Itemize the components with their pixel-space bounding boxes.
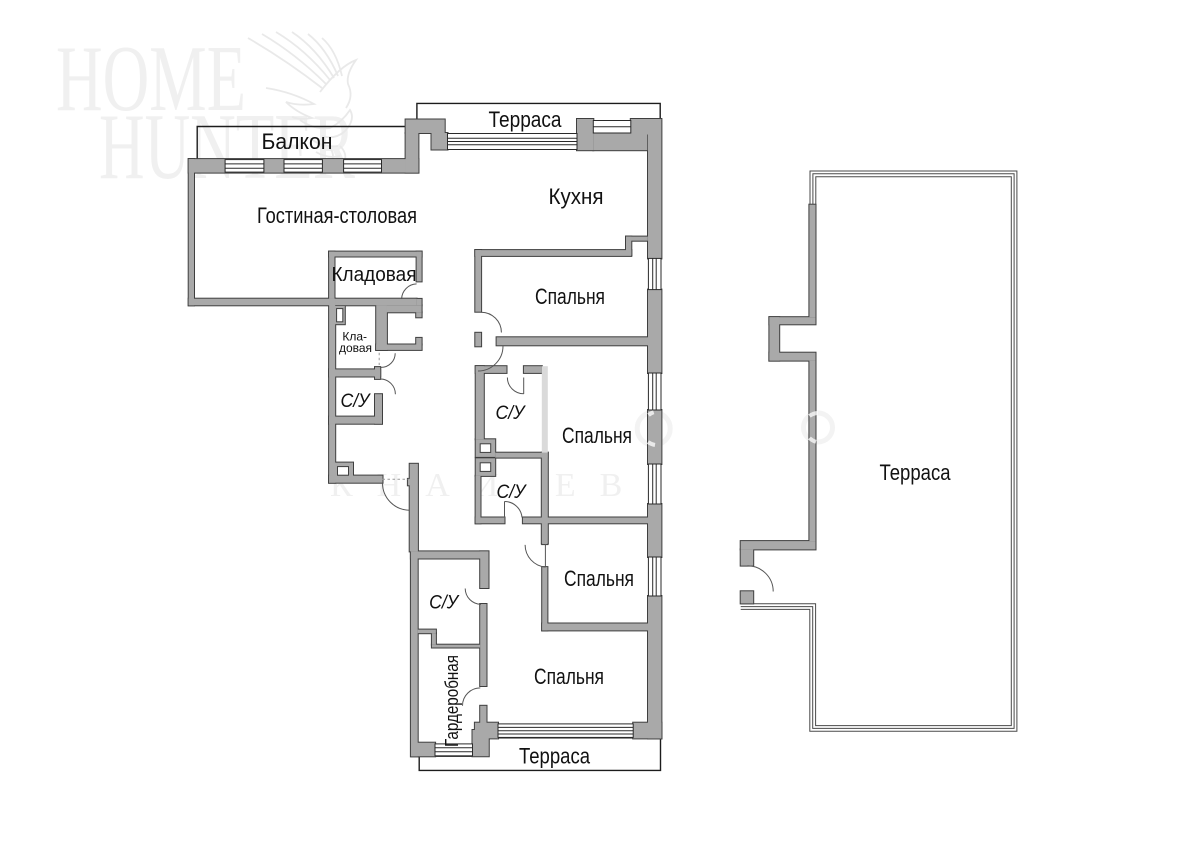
svg-text:Гардеробная: Гардеробная [442, 655, 462, 747]
svg-text:Терраса: Терраса [519, 744, 591, 769]
svg-text:Кладовая: Кладовая [332, 264, 417, 286]
svg-text:Спальня: Спальня [562, 423, 632, 448]
svg-text:С/У: С/У [497, 482, 528, 503]
svg-text:Спальня: Спальня [564, 566, 634, 591]
svg-text:С/У: С/У [341, 391, 372, 412]
svg-text:С/У: С/У [429, 593, 460, 614]
svg-text:Гостиная-столовая: Гостиная-столовая [257, 203, 417, 228]
svg-text:С/У: С/У [496, 403, 527, 424]
svg-text:Спальня: Спальня [534, 664, 604, 689]
svg-text:Спальня: Спальня [535, 284, 605, 309]
svg-text:довая: довая [339, 341, 372, 355]
svg-text:Терраса: Терраса [489, 107, 563, 132]
svg-text:Терраса: Терраса [880, 460, 952, 485]
svg-text:Балкон: Балкон [262, 129, 333, 154]
svg-text:Кухня: Кухня [549, 184, 604, 209]
